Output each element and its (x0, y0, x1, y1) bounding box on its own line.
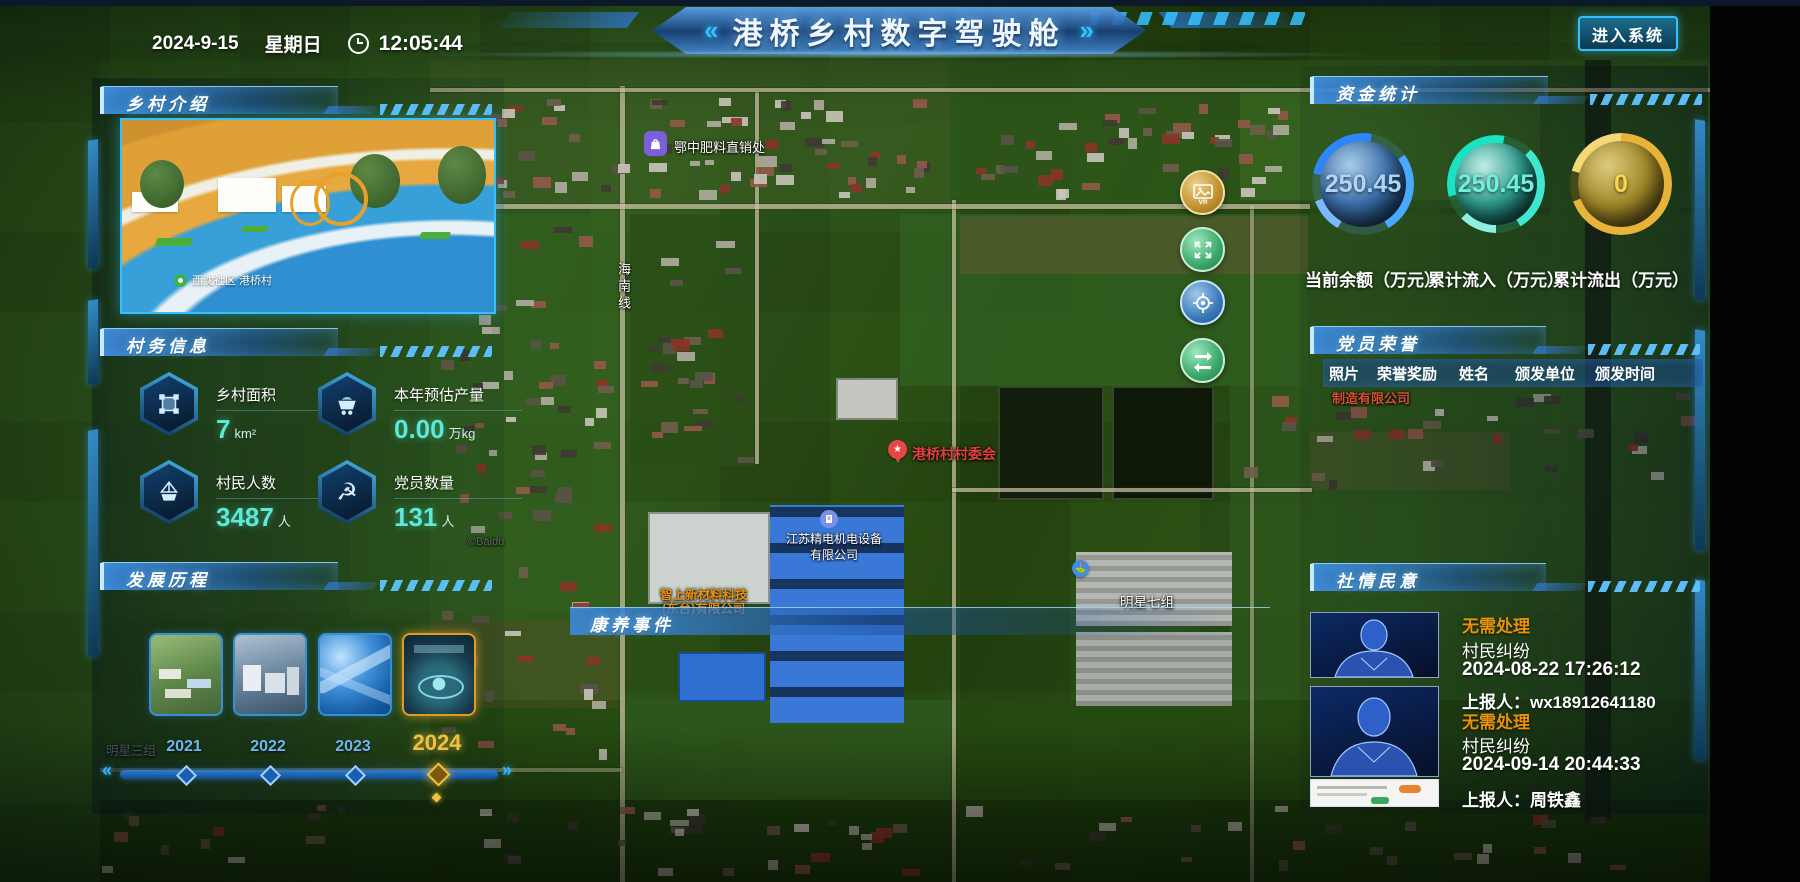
screen-black-margin (1710, 0, 1800, 882)
house (129, 816, 140, 825)
house (716, 241, 735, 248)
house (1119, 128, 1129, 138)
year-2022[interactable]: 2022 (233, 738, 303, 756)
panel-history-title: 发展历程 (126, 566, 210, 591)
house (1483, 844, 1492, 853)
house (1389, 430, 1404, 439)
house (533, 177, 551, 188)
gauge-outflow-label: 累计流出（万元） (1531, 266, 1711, 291)
house (677, 352, 695, 362)
svg-text:VR: VR (1198, 199, 1207, 205)
history-thumb-2021[interactable] (149, 633, 223, 716)
photo-arch-ring (290, 180, 330, 226)
history-thumb-2022[interactable] (233, 633, 307, 716)
house (547, 99, 561, 106)
party-icon: ☭ (318, 460, 376, 524)
house (1591, 817, 1606, 825)
house (661, 422, 677, 433)
thumb-detail (1317, 793, 1367, 796)
house (541, 397, 554, 405)
house (648, 346, 660, 352)
house (561, 450, 577, 458)
house (594, 524, 613, 532)
house (317, 805, 326, 811)
house (1103, 120, 1117, 126)
house (731, 118, 742, 126)
sentiment-photo-1[interactable] (1310, 612, 1439, 678)
thumb-detail (243, 665, 261, 691)
house (754, 174, 767, 184)
panel-funds-title: 资金统计 (1336, 80, 1420, 105)
house (1370, 847, 1383, 855)
enter-system-button[interactable]: 进入系统 (1578, 16, 1678, 51)
house (531, 340, 541, 350)
house (213, 827, 224, 837)
road (952, 200, 956, 882)
house (1542, 820, 1556, 828)
col-date: 颁发时间 (1595, 363, 1685, 384)
panel-health-events-header: 康养事件 (570, 607, 1270, 635)
top-strip (0, 0, 1800, 6)
field-patch (960, 216, 1308, 274)
chevron-left-icon: « (704, 15, 718, 46)
stat-party-members: ☭ 党员数量 131人 (318, 460, 498, 546)
house (693, 409, 708, 414)
house (518, 151, 535, 161)
house (1275, 806, 1288, 812)
house (553, 724, 567, 731)
house (554, 227, 572, 233)
company-poi-icon (820, 510, 838, 528)
house (670, 280, 683, 286)
house (670, 120, 685, 127)
house (780, 122, 795, 129)
house (599, 749, 607, 760)
title-plate: « 港桥乡村数字驾驶舱 » (652, 7, 1146, 54)
house (572, 172, 588, 181)
house (579, 236, 594, 247)
house (699, 190, 717, 199)
locate-button[interactable] (1180, 280, 1225, 325)
pond (998, 386, 1104, 500)
house (1544, 396, 1561, 405)
house (776, 175, 794, 185)
sentiment-photo-3-partial[interactable] (1310, 779, 1439, 807)
sentiment-status-2: 无需处理 (1462, 708, 1530, 733)
photo-bench (155, 238, 194, 246)
house (507, 813, 519, 822)
house (618, 164, 631, 173)
house (161, 845, 169, 855)
sentiment-status-1: 无需处理 (1462, 612, 1530, 637)
house (1128, 138, 1136, 148)
panel-history-header: 发展历程 (100, 562, 496, 592)
house (1000, 166, 1018, 172)
house (861, 834, 872, 841)
gauge-outflow: 0 (1570, 133, 1672, 235)
house (1001, 135, 1013, 145)
house (641, 381, 657, 387)
house (1215, 139, 1232, 147)
house (566, 728, 576, 735)
house (1317, 436, 1333, 442)
house (1423, 421, 1441, 429)
panel-honors-header: 党员荣誉 (1310, 326, 1704, 356)
house (866, 178, 876, 188)
house (767, 826, 779, 835)
house (201, 839, 209, 848)
house (1268, 108, 1281, 114)
house (1325, 825, 1341, 834)
house (690, 161, 700, 166)
house (707, 121, 721, 127)
house (1191, 825, 1201, 832)
photo-bench (241, 226, 269, 232)
warehouse (1076, 632, 1232, 706)
house (594, 442, 611, 448)
fullscreen-button[interactable] (1180, 227, 1225, 272)
house (499, 512, 512, 519)
house (1282, 422, 1296, 431)
location-pin-icon (174, 274, 187, 287)
house (685, 826, 702, 835)
photo-caption: 西沈社区 港桥村 (174, 272, 272, 288)
house (1272, 396, 1289, 407)
header-slash-decor (1588, 581, 1700, 592)
house (1163, 164, 1180, 172)
edge-decor (88, 139, 98, 268)
house (587, 657, 600, 665)
house (592, 701, 606, 709)
group-poi-icon: ⛳ (1072, 560, 1089, 577)
house (502, 109, 515, 119)
house (441, 360, 454, 370)
house (505, 631, 521, 636)
photo-building (218, 178, 276, 212)
pond (1112, 386, 1214, 500)
house (498, 119, 507, 127)
history-thumb-2023[interactable] (318, 633, 392, 716)
history-thumb-2024[interactable] (402, 633, 476, 716)
house (479, 315, 491, 325)
house (725, 268, 741, 274)
col-name: 姓名 (1459, 363, 1515, 384)
road (430, 204, 1310, 209)
thumb-detail (187, 679, 211, 688)
house (1085, 143, 1096, 152)
house (678, 378, 689, 384)
house (781, 101, 792, 111)
house (1634, 433, 1648, 443)
title-glow (420, 50, 1380, 59)
stat-estimated-yield: 本年预估产量 0.00万kg (318, 372, 498, 458)
sentiment-time-1: 2024-08-22 17:26:12 (1462, 659, 1641, 681)
panel-intro-title: 乡村介绍 (126, 90, 210, 115)
house (914, 168, 924, 178)
house (1239, 154, 1252, 164)
house (1544, 429, 1560, 434)
house (705, 160, 715, 166)
house (720, 185, 729, 193)
house (1534, 847, 1546, 854)
house (811, 853, 830, 862)
house (1019, 860, 1031, 866)
house (532, 445, 546, 455)
time-text: 12:05:44 (379, 32, 463, 56)
house (650, 189, 661, 197)
house (1568, 853, 1581, 863)
house (1477, 854, 1489, 864)
sentiment-photo-2[interactable] (1310, 686, 1439, 777)
house (794, 824, 809, 832)
house (542, 117, 558, 125)
thumb-detail (165, 689, 191, 698)
house (1578, 429, 1594, 438)
house (759, 156, 777, 167)
panel-sentiment-title: 社情民意 (1336, 567, 1420, 592)
house (1089, 832, 1105, 841)
house (673, 342, 689, 350)
house (906, 187, 915, 193)
panel-affairs-title: 村务信息 (126, 332, 210, 357)
house (719, 98, 731, 106)
house (584, 689, 592, 700)
house (652, 432, 662, 438)
house (521, 241, 539, 250)
panel-funds-header: 资金统计 (1310, 76, 1706, 106)
house (734, 394, 743, 402)
house (687, 809, 700, 816)
house (526, 398, 541, 405)
cart-icon (318, 372, 376, 436)
chevron-right-icon: » (1080, 15, 1094, 46)
house (768, 860, 778, 870)
stat-villager-count: 村民人数 3487人 (140, 460, 320, 546)
house (519, 567, 529, 577)
dashboard-screen: 鄂中肥料直销处 海南线 ★ 港桥村村委会 江苏精电机电设备 有限公司 智上新材料… (0, 0, 1800, 882)
house (1676, 393, 1691, 400)
date-text: 2024-9-15 (152, 33, 239, 55)
house (1082, 183, 1099, 190)
house (1351, 407, 1367, 418)
house (594, 361, 606, 369)
house (917, 161, 928, 168)
road (1250, 206, 1254, 882)
house (649, 163, 667, 173)
honors-table-header: 照片 荣誉奖励 姓名 颁发单位 颁发时间 (1323, 359, 1703, 387)
house (508, 856, 522, 863)
house (338, 806, 346, 813)
house (533, 510, 551, 521)
gauge-inflow: 250.45 (1447, 135, 1545, 233)
thumb-detail (414, 645, 464, 653)
house (766, 140, 777, 149)
house (839, 192, 850, 198)
edge-decor (1695, 579, 1705, 760)
weekday-text: 星期日 (265, 30, 322, 57)
house (815, 149, 827, 155)
house (1435, 409, 1444, 416)
house (517, 656, 533, 662)
house (1387, 856, 1398, 865)
house (568, 821, 577, 830)
house (558, 406, 571, 413)
edge-decor (88, 429, 98, 656)
house (1405, 822, 1416, 830)
sentiment-reporter-2: 上报人：周铁鑫 (1462, 786, 1581, 811)
road (952, 488, 1312, 492)
house (1293, 841, 1304, 849)
shop-poi-icon (644, 131, 667, 156)
house (557, 487, 571, 495)
village-photo[interactable]: 西沈社区 港桥村 (120, 118, 496, 314)
road (755, 92, 759, 464)
house (1181, 857, 1191, 863)
house (690, 380, 704, 388)
year-2023[interactable]: 2023 (318, 738, 388, 756)
thumb-detail (1399, 785, 1421, 793)
house (114, 832, 127, 842)
house (539, 382, 553, 390)
house (601, 185, 611, 192)
panel-health-events-title: 康养事件 (590, 611, 674, 636)
house (684, 426, 703, 432)
house (442, 611, 453, 620)
panel-affairs-header: 村务信息 (100, 328, 496, 358)
house (620, 807, 634, 814)
house (841, 141, 858, 147)
house (550, 343, 558, 349)
thumb-detail (159, 669, 181, 679)
house (675, 829, 684, 836)
photo-bench (419, 232, 452, 239)
house (652, 100, 668, 105)
layer-switch-button[interactable] (1180, 338, 1225, 383)
thumb-detail (1371, 797, 1389, 804)
panel-sentiment-header: 社情民意 (1310, 563, 1704, 593)
house (1431, 460, 1445, 467)
col-award: 荣誉奖励 (1377, 363, 1459, 384)
col-photo: 照片 (1323, 363, 1377, 384)
house (529, 486, 546, 493)
thumb-detail (418, 675, 464, 699)
house (644, 812, 662, 819)
house (555, 182, 568, 193)
house (598, 386, 614, 393)
house (560, 582, 577, 591)
house (228, 857, 244, 863)
house (876, 828, 893, 837)
col-issuer: 颁发单位 (1515, 363, 1595, 384)
house (1199, 104, 1208, 114)
house (484, 839, 501, 848)
factory-building (648, 512, 770, 604)
timeline-next-arrow[interactable]: » (502, 760, 512, 781)
house (1238, 120, 1250, 128)
year-2024[interactable]: 2024 (402, 730, 472, 756)
house (569, 134, 580, 142)
house (480, 809, 492, 817)
datetime-bar: 2024-9-15 星期日 12:05:44 (152, 30, 463, 57)
blue-pond (678, 652, 766, 702)
header-slash-decor (380, 346, 492, 357)
header-slash-decor (380, 104, 492, 115)
house (1036, 151, 1052, 159)
house (795, 865, 810, 874)
house (1279, 860, 1288, 871)
header-slash-decor (1590, 94, 1702, 105)
house (731, 172, 740, 182)
house (503, 191, 515, 198)
house (780, 164, 792, 173)
house (897, 155, 906, 164)
house (826, 111, 843, 122)
page-title: 港桥乡村数字驾驶舱 (733, 9, 1066, 53)
house (596, 408, 607, 418)
house (516, 300, 535, 306)
house (1026, 141, 1036, 149)
house (485, 691, 493, 702)
house (862, 843, 872, 850)
title-wing-left (499, 12, 640, 28)
gauge-balance: 250.45 (1312, 133, 1414, 235)
house (723, 868, 734, 876)
house (1139, 108, 1156, 115)
year-2021[interactable]: 2021 (149, 738, 219, 756)
house (1099, 823, 1116, 832)
house (868, 157, 877, 166)
house (618, 840, 627, 846)
house (966, 806, 983, 817)
panel-intro-header: 乡村介绍 (100, 86, 496, 116)
house (1265, 166, 1283, 171)
house (1454, 853, 1472, 860)
house (822, 139, 835, 144)
house (1143, 128, 1152, 136)
house (1244, 467, 1259, 478)
house (658, 868, 673, 876)
house (661, 258, 680, 266)
house (1087, 153, 1105, 162)
house (554, 105, 565, 111)
house (913, 99, 926, 109)
house (1493, 434, 1501, 444)
area-icon (140, 372, 198, 436)
house (1354, 430, 1370, 439)
house (1162, 134, 1180, 143)
committee-pin-icon[interactable]: ★ (888, 440, 907, 459)
house (1545, 466, 1557, 472)
house (1038, 175, 1054, 186)
house (849, 826, 859, 835)
house (805, 138, 823, 148)
house (1628, 444, 1637, 451)
house (1241, 188, 1255, 197)
timeline-prev-arrow[interactable]: « (102, 760, 112, 781)
house (981, 174, 996, 180)
house (1312, 473, 1326, 481)
boat-icon (140, 460, 198, 524)
house (1250, 125, 1264, 135)
header-slash-decor (1588, 344, 1700, 355)
house (851, 184, 862, 192)
house (801, 112, 811, 118)
house (1408, 429, 1423, 439)
stat-village-area: 乡村面积 7km² (140, 372, 320, 458)
vr-view-button[interactable]: VR (1180, 170, 1225, 215)
house (1516, 398, 1534, 407)
house (504, 371, 512, 380)
